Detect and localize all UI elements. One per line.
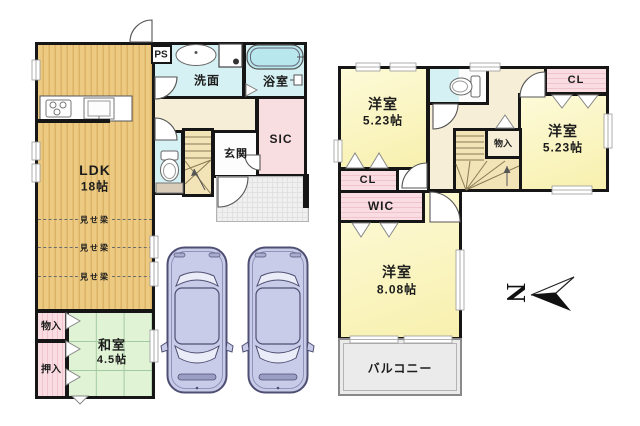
north-arrow: N bbox=[501, 277, 574, 311]
beam-label: 見せ梁 bbox=[80, 215, 110, 226]
bedroom-nw-area: 5.23帖 bbox=[363, 112, 403, 129]
genkan-label: 玄関 bbox=[224, 145, 248, 161]
beam-line bbox=[112, 219, 152, 220]
storage-1f-label: 物入 bbox=[41, 318, 61, 333]
beam-line bbox=[38, 276, 78, 277]
storage-2f-label: 物入 bbox=[494, 137, 512, 150]
balcony-label: バルコニー bbox=[368, 360, 433, 377]
north-label: N bbox=[501, 283, 531, 303]
beam-label: 見せ梁 bbox=[80, 272, 110, 283]
beam-line bbox=[112, 276, 152, 277]
porch bbox=[216, 176, 309, 222]
sic-label: SIC bbox=[269, 132, 292, 146]
cl-left-label: CL bbox=[360, 174, 377, 186]
wall-segment bbox=[303, 174, 309, 208]
ldk-name: LDK bbox=[79, 162, 111, 178]
cl-right-label: CL bbox=[568, 74, 585, 86]
washitsu-area: 4.5帖 bbox=[97, 351, 127, 367]
bedroom-e-area: 5.23帖 bbox=[543, 139, 583, 156]
beam-line bbox=[38, 219, 78, 220]
senmen-label: 洗面 bbox=[194, 72, 220, 89]
toilet-2f-floor bbox=[430, 69, 459, 102]
beam-line bbox=[112, 247, 152, 248]
bath-label: 浴室 bbox=[263, 73, 289, 90]
stairs-1f bbox=[182, 128, 214, 197]
beam-line bbox=[38, 247, 78, 248]
car-left bbox=[161, 248, 233, 393]
floor-plan: N LDK 18帖 見せ梁 見せ梁 見せ梁 物入 押入 和室 4.5帖 洗面 浴… bbox=[0, 0, 640, 426]
oshiire-label: 押入 bbox=[41, 361, 61, 376]
room-toilet-1f bbox=[152, 130, 184, 195]
beam-label: 見せ梁 bbox=[80, 243, 110, 254]
wic-label: WIC bbox=[368, 199, 394, 213]
room-toilet-2f bbox=[427, 66, 489, 105]
bedroom-s-name: 洋室 bbox=[382, 262, 412, 282]
ps-label: PS bbox=[154, 50, 167, 61]
bedroom-s-area: 8.08帖 bbox=[377, 281, 417, 298]
ldk-area: 18帖 bbox=[81, 178, 109, 195]
room-bath bbox=[243, 42, 307, 99]
car-right bbox=[242, 248, 314, 393]
